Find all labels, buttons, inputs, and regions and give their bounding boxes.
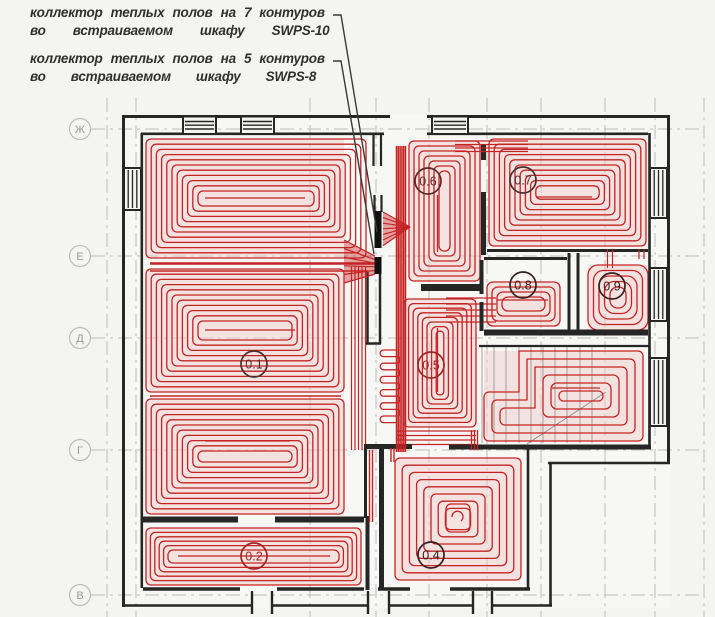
svg-text:0.5: 0.5	[422, 358, 439, 372]
svg-text:0.9: 0.9	[603, 279, 620, 293]
svg-text:0.1: 0.1	[245, 357, 262, 371]
svg-text:0.2: 0.2	[245, 549, 262, 563]
svg-text:Д: Д	[76, 333, 84, 345]
svg-text:коллектор теплых полов на 7 ко: коллектор теплых полов на 7 контуров	[30, 5, 325, 20]
svg-text:во встраиваемом шкафу SWPS-10: во встраиваемом шкафу SWPS-10	[30, 23, 330, 38]
svg-text:0.4: 0.4	[422, 548, 439, 562]
svg-text:коллектор теплых полов на 5 ко: коллектор теплых полов на 5 контуров	[30, 51, 325, 66]
svg-text:Ж: Ж	[75, 124, 85, 136]
svg-text:0.8: 0.8	[514, 278, 531, 292]
svg-text:Г: Г	[77, 445, 83, 457]
svg-text:0.7: 0.7	[514, 173, 531, 187]
svg-text:В: В	[76, 590, 83, 602]
svg-text:0.6: 0.6	[419, 174, 436, 188]
svg-text:во встраиваемом шкафу SWPS-8: во встраиваемом шкафу SWPS-8	[30, 69, 317, 84]
svg-text:Е: Е	[76, 251, 83, 263]
